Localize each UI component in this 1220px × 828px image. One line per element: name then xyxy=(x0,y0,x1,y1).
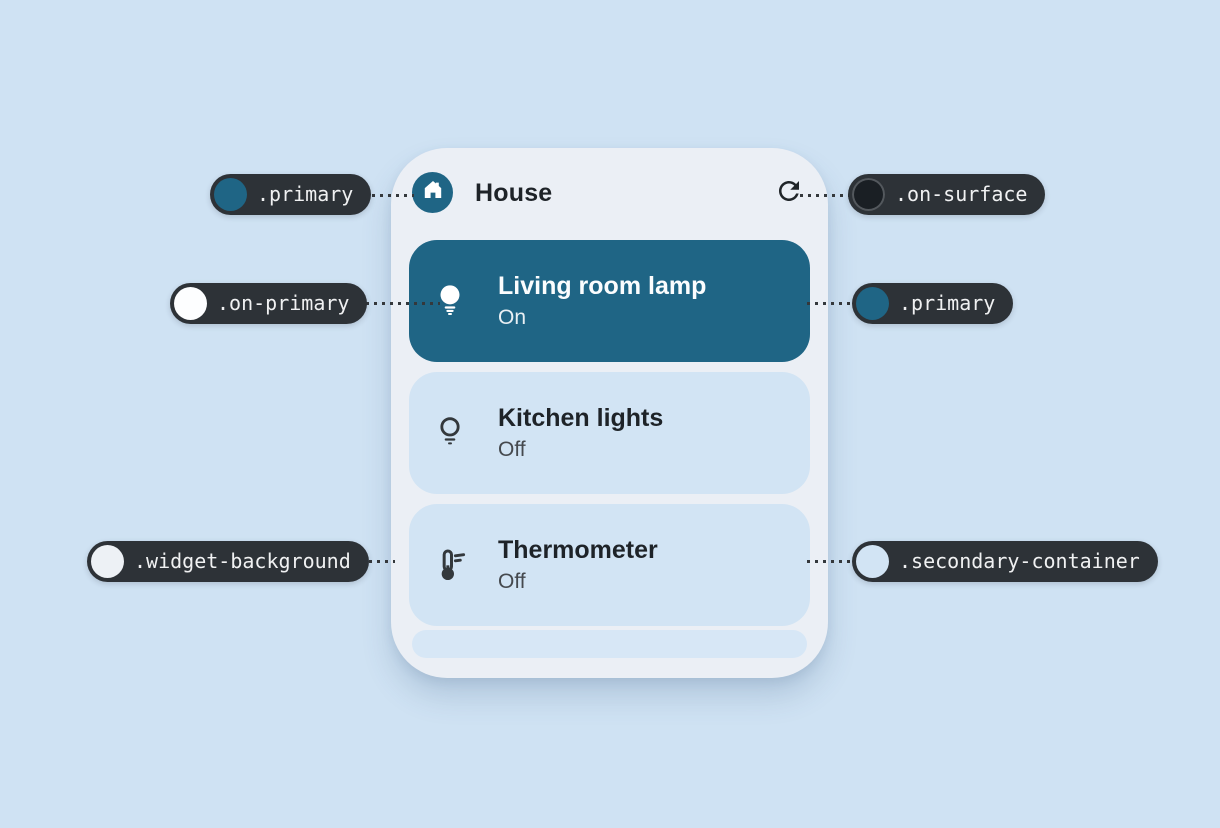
leader-line-on-surface xyxy=(800,194,852,197)
canvas: House Living room lamp On xyxy=(0,0,1220,828)
lightbulb-filled-icon xyxy=(428,279,472,323)
device-status: On xyxy=(498,306,810,329)
device-card-living-room-lamp[interactable]: Living room lamp On xyxy=(409,240,810,362)
token-label: .widget-background xyxy=(134,549,351,573)
color-swatch-widget-background xyxy=(91,545,124,578)
leader-line-primary-left xyxy=(364,194,414,197)
leader-line-on-primary xyxy=(366,302,440,305)
color-swatch-on-surface xyxy=(852,178,885,211)
refresh-button[interactable] xyxy=(774,178,804,208)
device-status: Off xyxy=(498,570,810,593)
token-label: .primary xyxy=(257,182,353,206)
device-name: Kitchen lights xyxy=(498,405,810,433)
home-avatar xyxy=(412,172,453,213)
thermometer-icon xyxy=(428,543,472,587)
color-swatch-on-primary xyxy=(174,287,207,320)
leader-line-primary-right xyxy=(807,302,856,305)
clipped-next-item xyxy=(412,630,807,658)
device-card-kitchen-lights[interactable]: Kitchen lights Off xyxy=(409,372,810,494)
token-label: .primary xyxy=(899,291,995,315)
widget-title: House xyxy=(475,179,552,208)
annotation-on-surface: .on-surface xyxy=(848,174,1045,215)
lightbulb-outline-icon xyxy=(428,411,472,455)
home-widget: House Living room lamp On xyxy=(391,148,828,678)
device-name: Thermometer xyxy=(498,537,810,565)
annotation-primary-left: .primary xyxy=(210,174,371,215)
device-card-thermometer[interactable]: Thermometer Off xyxy=(409,504,810,626)
device-status: Off xyxy=(498,438,810,461)
token-label: .on-surface xyxy=(895,182,1027,206)
refresh-icon xyxy=(774,176,804,211)
color-swatch-primary xyxy=(856,287,889,320)
device-name: Living room lamp xyxy=(498,273,810,301)
widget-header: House xyxy=(391,148,828,237)
token-label: .on-primary xyxy=(217,291,349,315)
color-swatch-secondary-container xyxy=(856,545,889,578)
leader-line-secondary xyxy=(807,560,856,563)
annotation-secondary-container: .secondary-container xyxy=(852,541,1158,582)
home-icon xyxy=(421,178,445,207)
annotation-on-primary: .on-primary xyxy=(170,283,367,324)
annotation-widget-background: .widget-background xyxy=(87,541,369,582)
annotation-primary-right: .primary xyxy=(852,283,1013,324)
color-swatch-primary xyxy=(214,178,247,211)
token-label: .secondary-container xyxy=(899,549,1140,573)
